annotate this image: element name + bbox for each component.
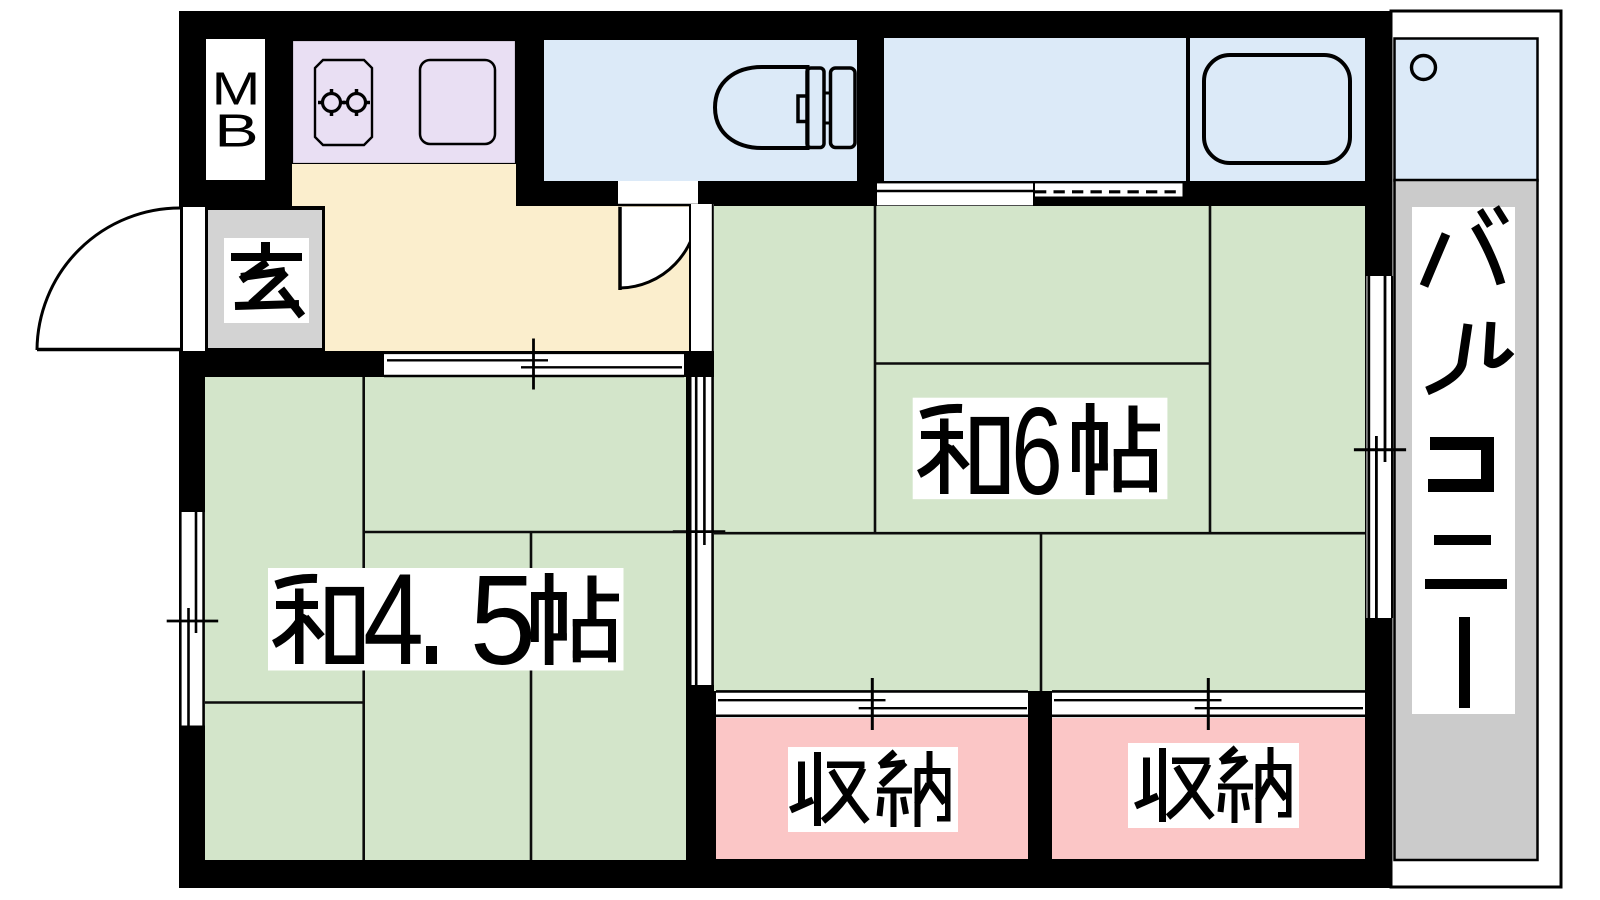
svg-text:5: 5 [470,550,536,692]
svg-text:B: B [214,106,258,157]
svg-text:4: 4 [363,547,424,692]
svg-text:6: 6 [1011,383,1063,521]
